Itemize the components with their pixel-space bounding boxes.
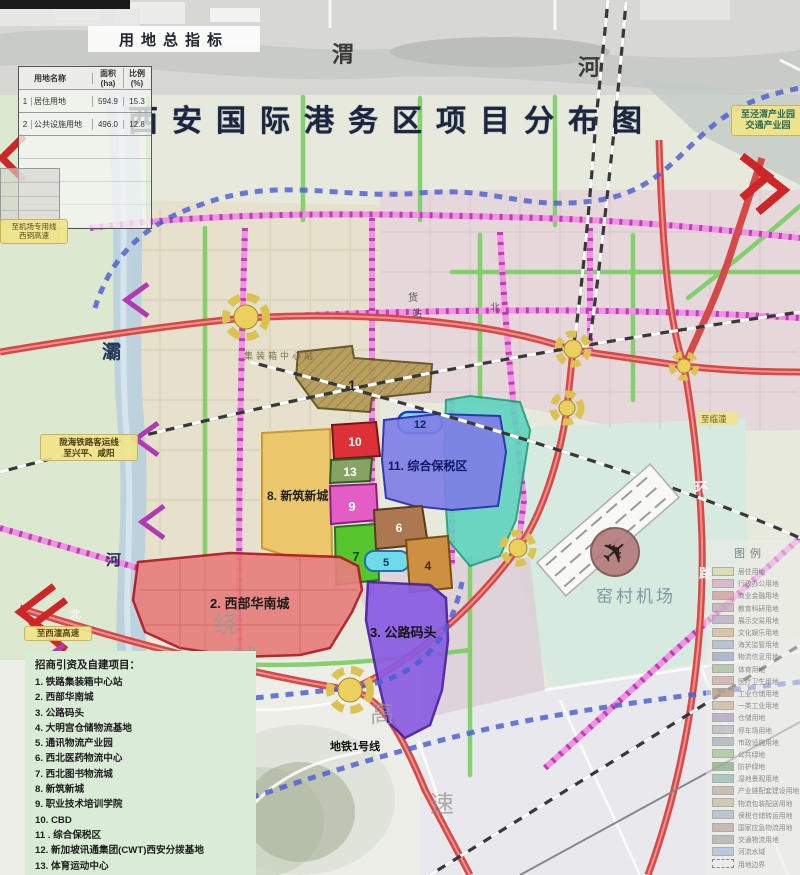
project-item: 3. 公路码头	[35, 706, 256, 721]
zone-label: 10	[348, 435, 362, 449]
legend-item: 一类工业用地	[712, 699, 800, 711]
airport-label: 窑村机场	[596, 587, 676, 606]
legend-item: 海关监管用地	[712, 638, 800, 650]
legend-swatch	[712, 628, 734, 637]
zone-label: 5	[383, 557, 389, 569]
legend-swatch	[712, 798, 734, 807]
corner-black-bar	[0, 0, 130, 9]
legend-item: 河流水域	[712, 845, 800, 857]
zone-label: 3. 公路码头	[370, 625, 436, 640]
legend-swatch	[712, 676, 734, 685]
legend-item: 防护绿地	[712, 760, 800, 772]
zone-label: 7	[352, 549, 359, 564]
legend-swatch	[712, 749, 734, 758]
zone-label: 1	[348, 377, 356, 393]
zone-label: 9	[348, 499, 355, 514]
zone-label: 4	[425, 559, 432, 573]
river-label-wei: 渭	[332, 42, 354, 67]
longhai-railway-callout: 陇海铁路客运线 至兴平、咸阳	[40, 434, 138, 461]
corner-white-strip	[0, 9, 140, 26]
road-char-bei: 北	[490, 302, 500, 314]
project-item: 11 . 综合保税区	[35, 828, 256, 843]
legend-item: 产业链配套建设用地	[712, 784, 800, 796]
legend-item: 商业金融用地	[712, 589, 800, 601]
legend-item: 医疗卫生用地	[712, 675, 800, 687]
legend-swatch	[712, 688, 734, 697]
project-item: 5. 通讯物流产业园	[35, 736, 256, 751]
metro1-label: 地铁1号线	[330, 739, 380, 753]
expressway-char: 速	[430, 791, 454, 818]
legend-swatch	[712, 664, 734, 673]
legend-swatch	[712, 591, 734, 600]
project-item: 13. 体育运动中心	[35, 859, 256, 874]
to-jingwei-callout: 至泾渭产业园 交通产业园	[731, 105, 800, 136]
legend-swatch	[712, 725, 734, 734]
legend-swatch	[712, 835, 734, 844]
legend-item: 居住用地	[712, 565, 800, 577]
legend-item: 行政办公用地	[712, 577, 800, 589]
legend-swatch	[712, 810, 734, 819]
legend-swatch-boundary	[712, 859, 734, 868]
legend-swatch	[712, 567, 734, 576]
project-item: 8. 新筑新城	[35, 782, 256, 797]
col-name: 用地名称	[32, 73, 93, 84]
legend-item: 展示交易用地	[712, 614, 800, 626]
legend-item: 市政设施用地	[712, 736, 800, 748]
zone-label: 8. 新筑新城	[267, 488, 328, 503]
project-item: 10. CBD	[35, 813, 256, 828]
project-item: 1. 铁路集装箱中心站	[35, 675, 256, 690]
expressway-char: 高	[370, 701, 394, 728]
project-item: 2. 西部华南城	[35, 690, 256, 705]
station-char: 货	[408, 291, 418, 304]
legend-item: 交通物流用地	[712, 833, 800, 845]
legend-swatch	[712, 603, 734, 612]
expressway-char: 绕	[214, 611, 238, 638]
road-char-bei: 北	[70, 608, 81, 621]
table-row: 2 公共设施用地 496.0 12.8	[19, 113, 151, 136]
legend-item: 用地边界	[712, 858, 800, 870]
zone-label: 12	[414, 419, 426, 431]
legend-item: 工业仓储用地	[712, 687, 800, 699]
indicator-table-title: 用地总指标	[88, 26, 260, 52]
legend-item: 物流包装配送用地	[712, 797, 800, 809]
container-station-label: 集装箱中心站	[244, 350, 316, 361]
project-item: 9. 职业技术培训学院	[35, 797, 256, 812]
zone-label: 13	[343, 465, 357, 479]
legend-item: 物流信息用地	[712, 650, 800, 662]
zone-label: 2. 西部华南城	[210, 596, 289, 611]
legend-swatch	[712, 847, 734, 856]
legend-item: 体育用地	[712, 663, 800, 675]
legend-item: 仓储用地	[712, 711, 800, 723]
project-item: 4. 大明宫仓储物流基地	[35, 721, 256, 736]
airport-line-callout: 至机场专用线 西铜高速	[0, 219, 68, 244]
legend-swatch	[712, 823, 734, 832]
zone-label: 11. 综合保税区	[388, 458, 467, 473]
legend-swatch	[712, 737, 734, 746]
table-row: 1 居住用地 594.9 15.3	[19, 90, 151, 113]
station-char: 站	[412, 307, 422, 320]
projects-legend-title: 招商引资及自建项目：	[35, 657, 256, 672]
indicator-table-header: 用地名称 面积(ha) 比例(%)	[19, 67, 151, 90]
legend-swatch	[712, 762, 734, 771]
legend-item: 停车场用地	[712, 723, 800, 735]
planning-map-page: ✈ 渭 河 灞 河 地铁3号线 地铁1号线 窑村机场 环 路 绕	[0, 0, 800, 875]
legend-swatch	[712, 579, 734, 588]
legend-swatch	[712, 786, 734, 795]
legend-item: 国家应急物流用地	[712, 821, 800, 833]
project-item: 7. 西北图书物流城	[35, 767, 256, 782]
legend-swatch	[712, 615, 734, 624]
ringroad-char: 环	[695, 480, 708, 495]
projects-legend: 招商引资及自建项目： 1. 铁路集装箱中心站 2. 西部华南城 3. 公路码头 …	[25, 651, 256, 875]
legend-swatch	[712, 640, 734, 649]
legend-item: 湿地景观用地	[712, 772, 800, 784]
page-title: 西安国际港务区项目分布图	[128, 96, 688, 140]
table-row-faded	[19, 136, 151, 159]
project-item: 12. 新加坡讯通集团(CWT)西安分拨基地	[35, 843, 256, 858]
legend-item: 文化娱乐用地	[712, 626, 800, 638]
legend-swatch	[712, 701, 734, 710]
to-xitong-expressway-callout: 至西潼高速	[24, 626, 92, 641]
to-lintong-label: 至临潼	[701, 414, 727, 424]
river-label-ba-he: 河	[106, 551, 121, 569]
legend-item: 公共绿地	[712, 748, 800, 760]
col-pct: 比例(%)	[124, 68, 150, 88]
zone-label: 6	[396, 521, 403, 535]
legend-item: 保税仓储转运用地	[712, 809, 800, 821]
river-label-ba: 灞	[102, 341, 121, 363]
legend-swatch	[712, 652, 734, 661]
land-use-legend: 图例 居住用地 行政办公用地 商业金融用地 教育科研用地 展示交易用地 文化娱乐…	[706, 540, 800, 875]
legend-swatch	[712, 774, 734, 783]
river-label-he: 河	[578, 55, 600, 80]
legend-swatch	[712, 713, 734, 722]
legend-item: 教育科研用地	[712, 602, 800, 614]
col-area: 面积(ha)	[93, 68, 124, 88]
project-item: 6. 西北医药物流中心	[35, 751, 256, 766]
land-use-legend-title: 图例	[734, 545, 800, 561]
